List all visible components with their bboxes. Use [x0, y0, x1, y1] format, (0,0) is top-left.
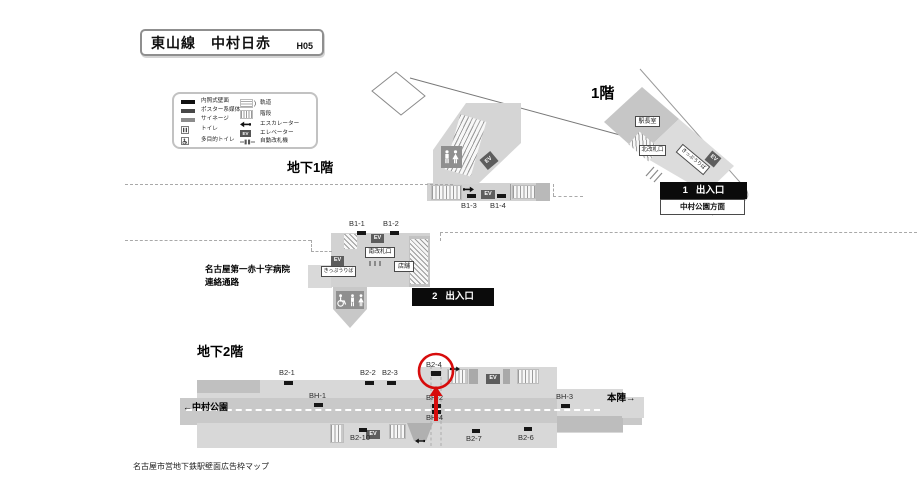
highlight-circle-b2-4 — [419, 354, 453, 388]
map-footer-caption: 名古屋市営地下鉄駅壁面広告枠マップ — [133, 461, 269, 472]
highlight-layer — [0, 0, 919, 491]
station-ad-map: 東山線 中村日赤 H05 内照式壁面 ポスター系媒体 サイネージ トイレ — [0, 0, 919, 491]
